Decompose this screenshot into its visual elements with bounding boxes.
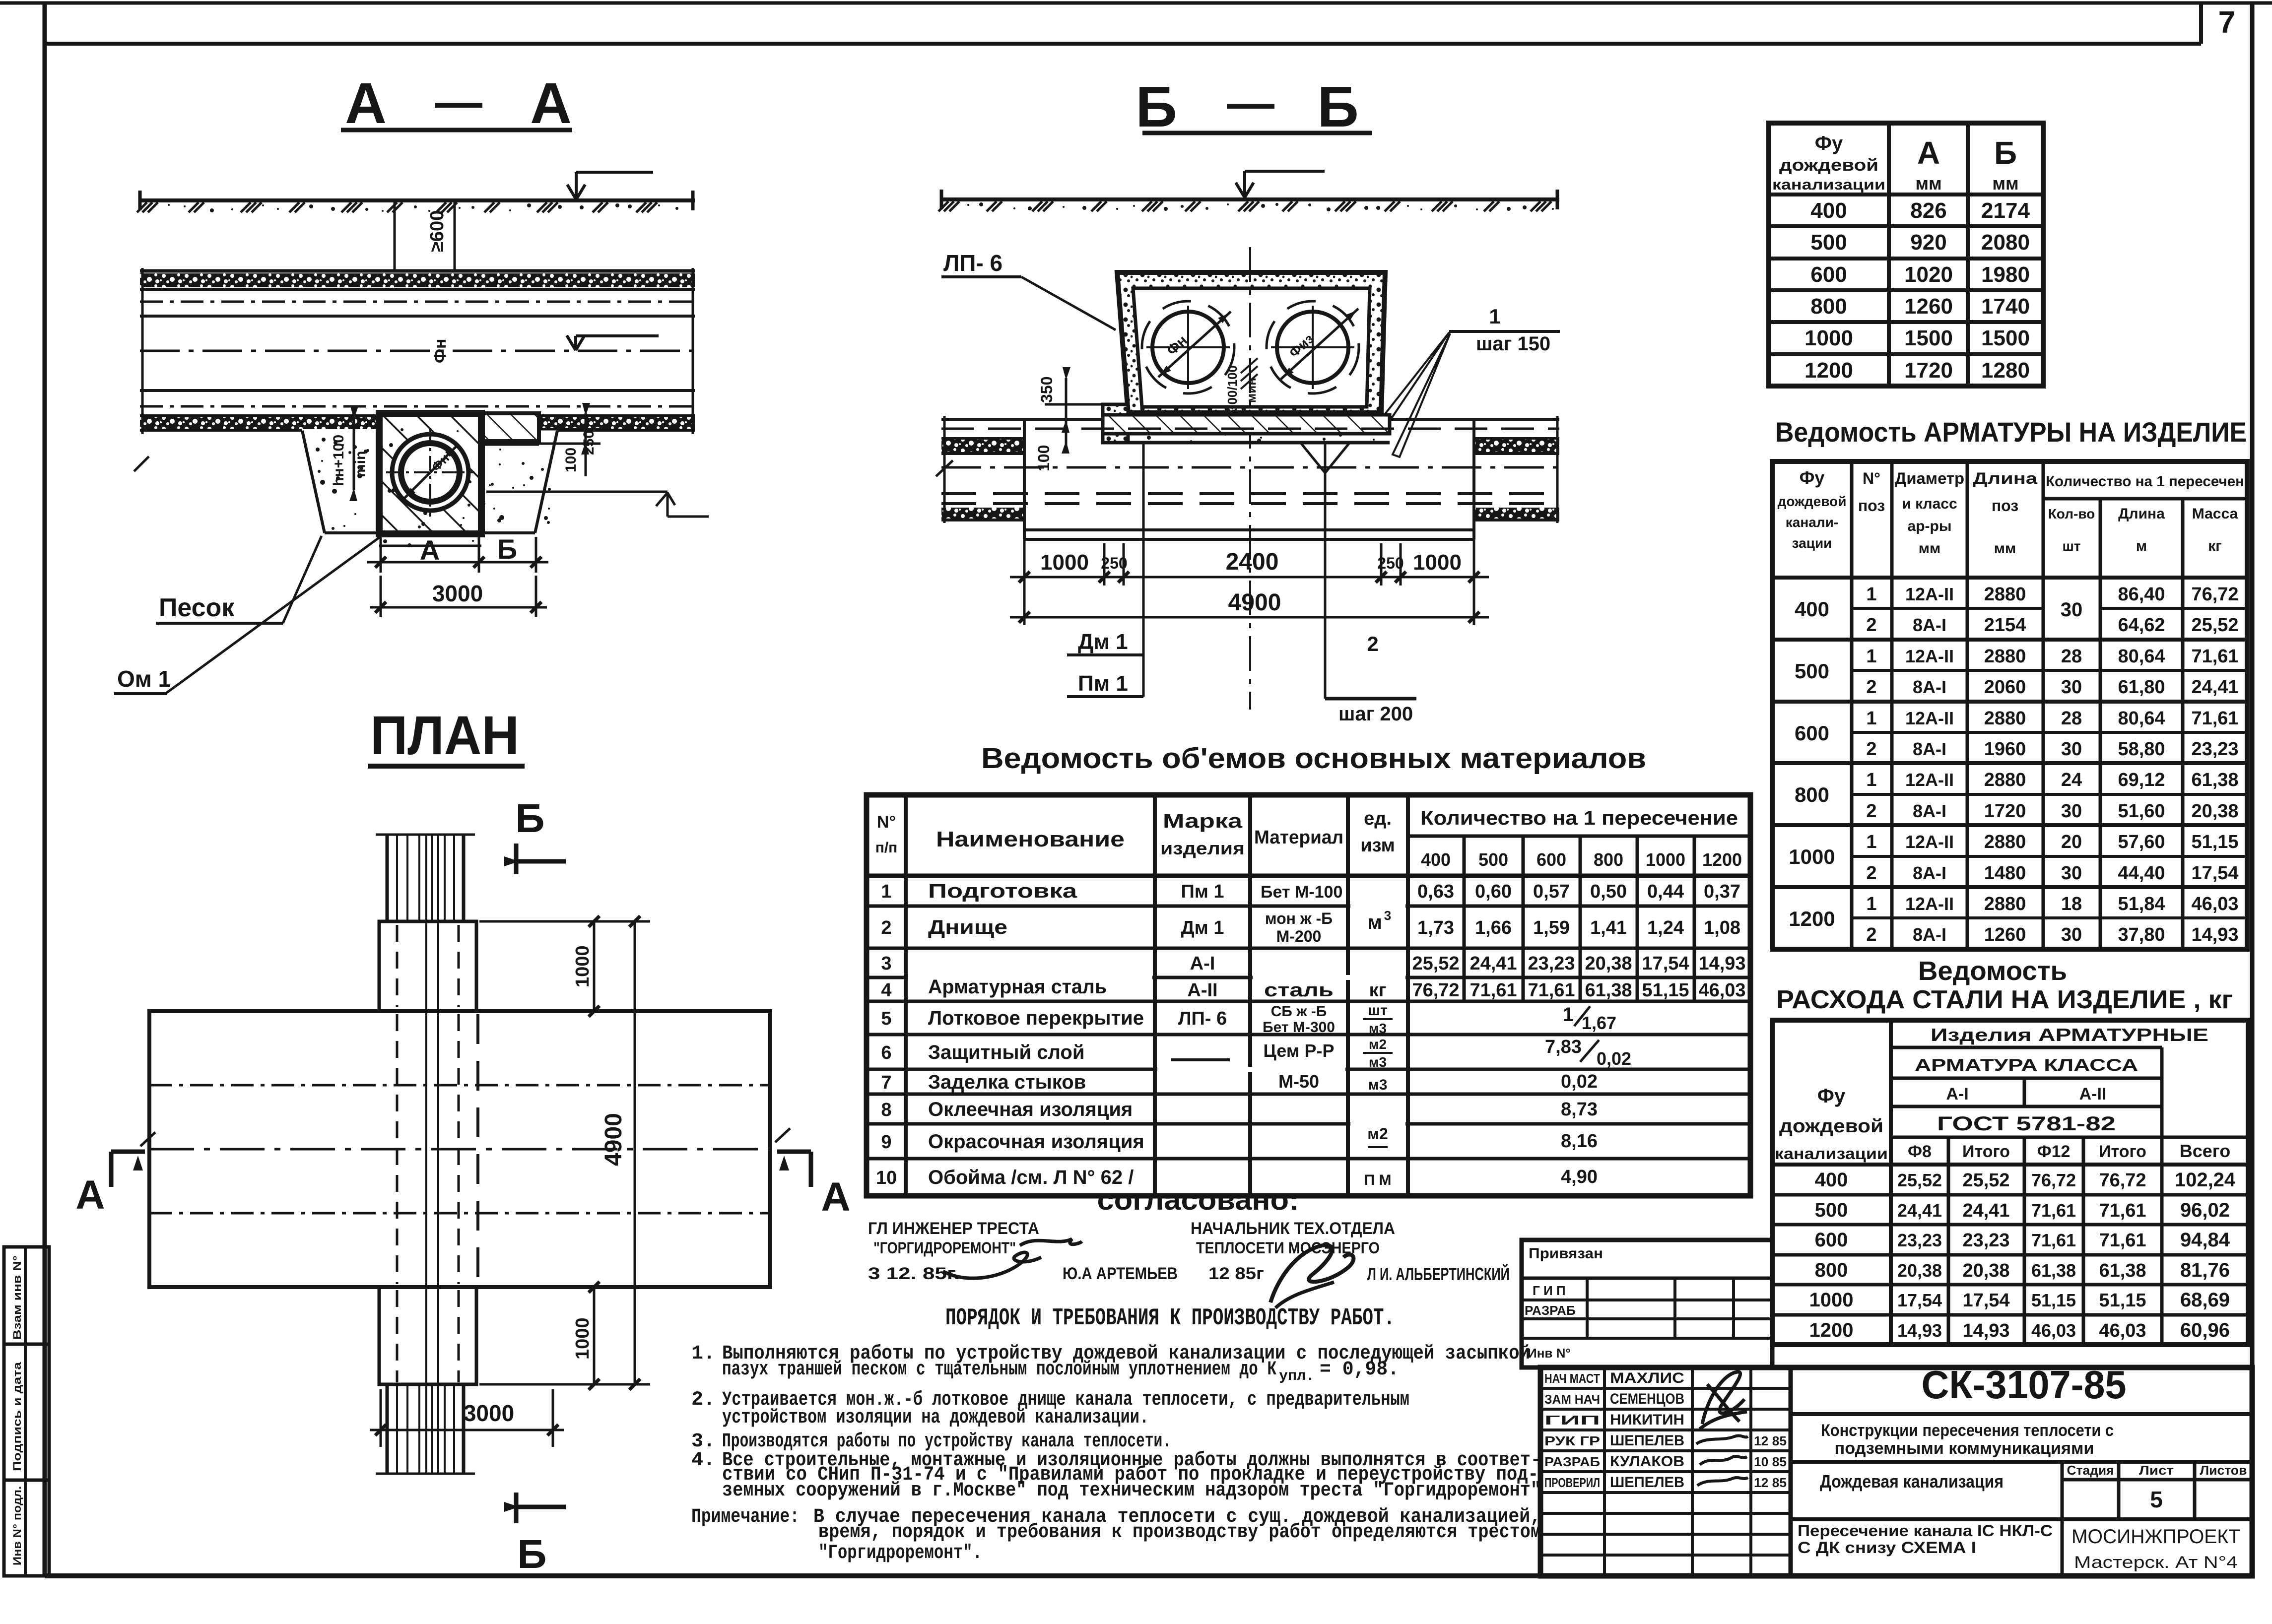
- svg-text:86,40: 86,40: [2118, 584, 2165, 605]
- svg-text:81,76: 81,76: [2180, 1259, 2230, 1281]
- svg-text:2: 2: [1866, 615, 1876, 636]
- svg-text:0,60: 0,60: [1475, 881, 1512, 902]
- svg-text:80,64: 80,64: [2118, 708, 2165, 729]
- svg-text:64,62: 64,62: [2118, 615, 2165, 636]
- svg-text:94,84: 94,84: [2180, 1229, 2230, 1251]
- svg-text:1,08: 1,08: [1704, 917, 1740, 938]
- svg-text:4900: 4900: [601, 1113, 627, 1166]
- svg-text:12А-II: 12А-II: [1905, 770, 1954, 790]
- svg-text:1,59: 1,59: [1533, 917, 1570, 938]
- svg-text:кг: кг: [1369, 980, 1387, 1001]
- svg-text:мм: мм: [1915, 173, 1941, 194]
- svg-text:1500: 1500: [1981, 326, 2030, 350]
- svg-text:1200: 1200: [1809, 1319, 1854, 1341]
- svg-text:А: А: [420, 534, 440, 566]
- svg-text:изм: изм: [1360, 835, 1395, 856]
- svg-text:1: 1: [1866, 584, 1876, 605]
- svg-text:500: 500: [1810, 230, 1847, 255]
- svg-text:25,52: 25,52: [1897, 1170, 1942, 1190]
- svg-text:дождевой: дождевой: [1779, 156, 1878, 175]
- svg-text:61,38: 61,38: [2031, 1260, 2076, 1281]
- svg-text:1000: 1000: [1789, 845, 1835, 868]
- svg-text:28: 28: [2061, 708, 2082, 729]
- svg-text:Фу: Фу: [1817, 1085, 1846, 1107]
- svg-text:Г И П: Г И П: [1533, 1283, 1566, 1298]
- svg-text:"ГОРГИДРОРЕМОНТ": "ГОРГИДРОРЕМОНТ": [873, 1239, 1016, 1257]
- svg-text:61,38: 61,38: [2191, 770, 2238, 790]
- svg-text:А: А: [75, 1172, 105, 1218]
- svg-text:1980: 1980: [1981, 262, 2030, 287]
- svg-text:Наименование: Наименование: [936, 827, 1125, 851]
- svg-text:826: 826: [1910, 198, 1946, 223]
- svg-text:46,03: 46,03: [2099, 1320, 2146, 1341]
- svg-text:12А-II: 12А-II: [1905, 894, 1954, 914]
- svg-text:76,72: 76,72: [1412, 980, 1459, 1001]
- svg-text:2880: 2880: [1984, 770, 2026, 790]
- svg-text:2154: 2154: [1984, 615, 2026, 636]
- svg-text:дождевой: дождевой: [1779, 1116, 1883, 1137]
- svg-text:61,38: 61,38: [2099, 1260, 2146, 1281]
- svg-text:71,61: 71,61: [2099, 1200, 2146, 1221]
- svg-text:1280: 1280: [1981, 358, 2030, 383]
- svg-text:2: 2: [1367, 632, 1378, 655]
- svg-text:30: 30: [2061, 599, 2083, 621]
- svg-text:Мастерск. Ат N°4: Мастерск. Ат N°4: [2074, 1553, 2238, 1572]
- svg-text:Подготовка: Подготовка: [928, 880, 1077, 902]
- svg-text:шаг 200: шаг 200: [1338, 703, 1413, 725]
- svg-text:5: 5: [2150, 1487, 2163, 1512]
- svg-text:4: 4: [881, 980, 891, 1001]
- svg-text:Подпись и дата: Подпись и дата: [11, 1362, 23, 1471]
- svg-text:51,15: 51,15: [2099, 1290, 2146, 1311]
- svg-text:71,61: 71,61: [1528, 980, 1575, 1001]
- svg-text:1000: 1000: [572, 945, 593, 987]
- svg-text:30: 30: [2061, 863, 2082, 884]
- svg-text:1,41: 1,41: [1590, 917, 1627, 938]
- svg-text:350: 350: [1038, 377, 1056, 403]
- svg-text:5: 5: [881, 1008, 891, 1029]
- svg-text:СК-3107-85: СК-3107-85: [1922, 1363, 2127, 1407]
- svg-text:1,73: 1,73: [1417, 917, 1454, 938]
- svg-text:min: min: [352, 451, 369, 477]
- svg-text:мон ж -Б: мон ж -Б: [1265, 909, 1333, 927]
- svg-text:51,60: 51,60: [2118, 801, 2165, 822]
- svg-text:8,16: 8,16: [1561, 1131, 1598, 1152]
- svg-text:2: 2: [881, 917, 891, 938]
- svg-text:8А-I: 8А-I: [1913, 615, 1946, 635]
- svg-text:Л И. АЛЬБЕРТИНСКИЙ: Л И. АЛЬБЕРТИНСКИЙ: [1367, 1263, 1510, 1284]
- svg-text:23,23: 23,23: [1897, 1230, 1942, 1250]
- svg-text:1000: 1000: [1413, 550, 1462, 575]
- svg-text:17,54: 17,54: [2191, 863, 2238, 884]
- svg-text:51,84: 51,84: [2118, 894, 2165, 914]
- svg-text:м2: м2: [1367, 1125, 1388, 1143]
- svg-text:Примечание:: Примечание:: [691, 1506, 800, 1528]
- svg-text:800: 800: [1815, 1259, 1848, 1281]
- svg-text:Ведомость АРМАТУРЫ НА ИЗДЕЛ: Ведомость АРМАТУРЫ НА ИЗДЕЛИЕ: [1775, 416, 2247, 448]
- svg-text:Листов: Листов: [2200, 1463, 2247, 1478]
- svg-text:2174: 2174: [1981, 198, 2030, 223]
- svg-text:устройством изоляции на дождев: устройством изоляции на дождевой канализ…: [722, 1407, 1149, 1429]
- svg-text:1: 1: [1489, 305, 1500, 328]
- svg-text:Дождевая канализация: Дождевая канализация: [1820, 1471, 2004, 1492]
- svg-text:20,38: 20,38: [2191, 801, 2238, 822]
- svg-text:Количество на 1 пересечен: Количество на 1 пересечен: [2046, 473, 2244, 490]
- svg-text:поз: поз: [1858, 497, 1885, 515]
- svg-text:30: 30: [2061, 739, 2082, 760]
- svg-text:А-II: А-II: [1187, 980, 1217, 1001]
- svg-text:920: 920: [1910, 230, 1946, 255]
- svg-text:РАЗРАБ: РАЗРАБ: [1525, 1303, 1576, 1318]
- svg-text:Пересечение канала IС НКЛ-С: Пересечение канала IС НКЛ-С: [1798, 1522, 2053, 1540]
- svg-text:Пм 1: Пм 1: [1181, 881, 1224, 902]
- svg-text:10: 10: [876, 1168, 897, 1188]
- svg-text:Масса: Масса: [2192, 506, 2238, 522]
- svg-text:Фн: Фн: [431, 338, 450, 363]
- svg-text:Ведомость: Ведомость: [1918, 956, 2067, 986]
- svg-text:Стадия: Стадия: [2067, 1463, 2114, 1478]
- svg-text:Диаметр: Диаметр: [1895, 469, 1964, 487]
- svg-text:Песок: Песок: [159, 593, 235, 622]
- svg-text:А-I: А-I: [1946, 1085, 1968, 1104]
- svg-text:400: 400: [1815, 1169, 1848, 1191]
- svg-text:1020: 1020: [1904, 262, 1953, 287]
- svg-text:0,02: 0,02: [1597, 1048, 1631, 1069]
- svg-text:МАХЛИС: МАХЛИС: [1610, 1370, 1684, 1386]
- svg-text:68,69: 68,69: [2180, 1289, 2230, 1311]
- svg-text:согласовано:: согласовано:: [1097, 1184, 1299, 1216]
- svg-text:250: 250: [1377, 554, 1403, 572]
- svg-text:мм: мм: [1992, 173, 2018, 194]
- svg-text:12А-II: 12А-II: [1905, 708, 1954, 728]
- svg-text:23,23: 23,23: [1962, 1230, 2009, 1251]
- svg-text:ЛП- 6: ЛП- 6: [1178, 1008, 1227, 1029]
- svg-text:Фу: Фу: [1800, 467, 1825, 488]
- svg-text:0,57: 0,57: [1533, 881, 1570, 902]
- svg-text:Б: Б: [1317, 74, 1358, 139]
- svg-text:71,61: 71,61: [2191, 708, 2238, 729]
- svg-text:мм: мм: [1919, 540, 1940, 557]
- svg-text:61,80: 61,80: [2118, 677, 2165, 698]
- svg-text:1.: 1.: [691, 1343, 715, 1365]
- svg-text:1200: 1200: [1702, 849, 1742, 870]
- svg-text:время, порядок и требования к: время, порядок и требования к производст…: [818, 1521, 1541, 1544]
- svg-text:А-I: А-I: [1190, 953, 1215, 974]
- svg-text:30: 30: [2061, 677, 2082, 698]
- svg-text:96,02: 96,02: [2180, 1199, 2230, 1221]
- svg-text:1740: 1740: [1981, 294, 2030, 319]
- svg-text:1500: 1500: [1904, 326, 1953, 350]
- svg-text:3: 3: [1384, 908, 1391, 923]
- svg-text:земных сооружений в г.Москве": земных сооружений в г.Москве" под технич…: [722, 1480, 1541, 1502]
- svg-text:1000: 1000: [1646, 849, 1685, 870]
- svg-text:А: А: [345, 71, 387, 135]
- svg-text:37,80: 37,80: [2118, 924, 2165, 945]
- svg-text:400: 400: [1795, 597, 1829, 621]
- svg-text:1: 1: [1866, 708, 1876, 729]
- svg-text:м3: м3: [1369, 1021, 1387, 1036]
- svg-text:400: 400: [1810, 198, 1847, 223]
- svg-text:12А-II: 12А-II: [1905, 646, 1954, 666]
- svg-text:ГИП: ГИП: [1544, 1413, 1600, 1428]
- svg-text:80,64: 80,64: [2118, 646, 2165, 667]
- svg-text:м: м: [2136, 538, 2147, 554]
- svg-text:Кол-во: Кол-во: [2048, 506, 2095, 521]
- svg-text:1260: 1260: [1904, 294, 1953, 319]
- svg-text:1,24: 1,24: [1647, 917, 1684, 938]
- svg-text:Окрасочная изоляция: Окрасочная изоляция: [928, 1131, 1144, 1153]
- svg-text:1: 1: [1866, 832, 1876, 852]
- svg-text:П М: П М: [1364, 1172, 1392, 1188]
- svg-text:Взам инв N°: Взам инв N°: [11, 1255, 23, 1340]
- svg-text:400: 400: [1421, 849, 1451, 870]
- svg-text:20,38: 20,38: [1897, 1260, 1942, 1281]
- svg-text:25,52: 25,52: [1962, 1170, 2009, 1191]
- svg-text:1200: 1200: [1804, 358, 1853, 383]
- svg-text:2880: 2880: [1984, 584, 2026, 605]
- svg-text:76,72: 76,72: [2031, 1170, 2076, 1190]
- svg-text:шаг 150: шаг 150: [1476, 333, 1550, 355]
- svg-text:ГОСТ 5781-82: ГОСТ 5781-82: [1937, 1113, 2116, 1135]
- svg-text:ед.: ед.: [1364, 808, 1392, 829]
- svg-text:2880: 2880: [1984, 894, 2026, 914]
- svg-text:ГЛ ИНЖЕНЕР ТРЕСТА: ГЛ ИНЖЕНЕР ТРЕСТА: [868, 1219, 1039, 1238]
- svg-text:8: 8: [881, 1100, 891, 1120]
- svg-text:1,67: 1,67: [1582, 1013, 1616, 1033]
- svg-text:51,15: 51,15: [2191, 832, 2238, 852]
- svg-text:61,38: 61,38: [1585, 980, 1632, 1001]
- svg-text:—: —: [435, 75, 482, 129]
- svg-text:3000: 3000: [464, 1400, 514, 1426]
- svg-text:канализации: канализации: [1772, 177, 1885, 193]
- svg-text:800: 800: [1594, 849, 1623, 870]
- svg-text:69,12: 69,12: [2118, 770, 2165, 790]
- svg-text:М-200: М-200: [1276, 927, 1322, 945]
- svg-text:Фу: Фу: [1815, 132, 1843, 154]
- svg-text:2400: 2400: [1226, 549, 1279, 575]
- svg-text:Ом 1: Ом 1: [117, 666, 171, 692]
- svg-text:1: 1: [1866, 646, 1876, 667]
- svg-text:2880: 2880: [1984, 832, 2026, 852]
- svg-text:1000: 1000: [1804, 326, 1853, 350]
- svg-text:76,72: 76,72: [2191, 584, 2238, 605]
- svg-text:дождевой: дождевой: [1778, 494, 1847, 509]
- svg-text:12 85: 12 85: [1754, 1475, 1787, 1490]
- svg-text:А: А: [1917, 135, 1940, 171]
- svg-text:Б: Б: [497, 533, 517, 565]
- svg-text:14,93: 14,93: [1962, 1320, 2009, 1341]
- svg-text:С ДК снизу СХЕМА I: С ДК снизу СХЕМА I: [1798, 1539, 1976, 1557]
- svg-text:1: 1: [1866, 894, 1876, 914]
- svg-text:РАЗРАБ: РАЗРАБ: [1544, 1454, 1600, 1469]
- svg-text:ЗАМ НАЧ: ЗАМ НАЧ: [1544, 1392, 1600, 1407]
- svg-text:2: 2: [1866, 863, 1876, 884]
- svg-text:8А-I: 8А-I: [1913, 677, 1946, 697]
- svg-text:Бет М-300: Бет М-300: [1263, 1019, 1335, 1036]
- svg-text:Ф8: Ф8: [1908, 1142, 1932, 1161]
- svg-text:20: 20: [2061, 832, 2082, 852]
- svg-text:Б: Б: [1136, 74, 1177, 139]
- svg-text:0,50: 0,50: [1590, 881, 1627, 902]
- svg-text:ПЛАН: ПЛАН: [370, 705, 519, 766]
- svg-text:20,38: 20,38: [1585, 953, 1632, 974]
- svg-text:ПРОВЕРИЛ: ПРОВЕРИЛ: [1544, 1475, 1600, 1490]
- svg-text:25,52: 25,52: [2191, 615, 2238, 636]
- svg-text:Лист: Лист: [2139, 1463, 2174, 1478]
- svg-text:мм: мм: [1994, 540, 2016, 557]
- svg-text:7: 7: [2218, 5, 2235, 40]
- svg-text:0,44: 0,44: [1647, 881, 1684, 902]
- svg-text:Длина: Длина: [2118, 506, 2165, 522]
- svg-text:24,41: 24,41: [1962, 1200, 2009, 1221]
- svg-text:Бет М-100: Бет М-100: [1261, 883, 1342, 902]
- svg-text:100: 100: [563, 448, 579, 472]
- svg-text:12 85: 12 85: [1754, 1433, 1787, 1448]
- svg-text:Цем Р-Р: Цем Р-Р: [1264, 1040, 1335, 1061]
- svg-text:30: 30: [2061, 924, 2082, 945]
- svg-text:500: 500: [1478, 849, 1508, 870]
- svg-text:изделия: изделия: [1160, 838, 1245, 858]
- svg-text:Б: Б: [1994, 135, 2017, 171]
- svg-text:поз: поз: [1992, 497, 2018, 515]
- svg-text:3: 3: [881, 953, 891, 974]
- svg-text:46,03: 46,03: [2191, 894, 2238, 914]
- svg-text:0,02: 0,02: [1561, 1071, 1598, 1092]
- svg-text:23,23: 23,23: [1528, 953, 1575, 974]
- svg-text:9: 9: [881, 1132, 891, 1153]
- svg-text:1200: 1200: [1789, 907, 1835, 930]
- svg-text:8А-I: 8А-I: [1913, 863, 1946, 883]
- svg-text:8А-I: 8А-I: [1913, 924, 1946, 945]
- svg-text:500: 500: [1795, 659, 1829, 683]
- svg-text:2080: 2080: [1981, 230, 2030, 255]
- svg-text:12А-II: 12А-II: [1905, 584, 1954, 604]
- svg-text:2: 2: [1866, 739, 1876, 760]
- svg-text:СБ ж -Б: СБ ж -Б: [1271, 1003, 1327, 1020]
- svg-text:1960: 1960: [1984, 739, 2026, 760]
- svg-text:51,15: 51,15: [2031, 1290, 2076, 1310]
- svg-text:58,80: 58,80: [2118, 739, 2165, 760]
- svg-text:250: 250: [581, 430, 597, 455]
- svg-text:"Горгидроремонт".: "Горгидроремонт".: [818, 1542, 982, 1564]
- svg-text:шт: шт: [2062, 538, 2080, 554]
- svg-text:51,15: 51,15: [1642, 980, 1689, 1001]
- svg-text:46,03: 46,03: [1698, 980, 1745, 1001]
- svg-text:Марка: Марка: [1163, 810, 1243, 832]
- svg-text:РАСХОДА СТАЛИ НА ИЗДЕЛИЕ ,: РАСХОДА СТАЛИ НА ИЗДЕЛИЕ , кг: [1776, 985, 2233, 1014]
- svg-text:24,41: 24,41: [1470, 953, 1517, 974]
- svg-text:1000: 1000: [1809, 1289, 1854, 1311]
- svg-text:25,52: 25,52: [1412, 953, 1459, 974]
- svg-text:4,90: 4,90: [1561, 1167, 1598, 1187]
- svg-text:17,54: 17,54: [1642, 953, 1689, 974]
- svg-text:Ведомость об'емов основных: Ведомость об'емов основных материалов: [981, 742, 1646, 775]
- svg-text:≥600: ≥600: [427, 210, 448, 252]
- svg-text:800: 800: [1810, 294, 1847, 319]
- svg-text:2: 2: [1866, 924, 1876, 945]
- svg-text:1: 1: [881, 881, 891, 902]
- svg-text:800: 800: [1795, 783, 1829, 806]
- svg-text:ШЕПЕЛЕВ: ШЕПЕЛЕВ: [1610, 1432, 1684, 1449]
- svg-text:Дм 1: Дм 1: [1181, 917, 1224, 938]
- svg-text:8А-I: 8А-I: [1913, 739, 1946, 759]
- svg-text:2880: 2880: [1984, 708, 2026, 729]
- svg-text:N°: N°: [877, 813, 896, 832]
- svg-text:Итого: Итого: [2099, 1142, 2146, 1161]
- svg-text:8,73: 8,73: [1561, 1099, 1598, 1120]
- svg-text:Привязан: Привязан: [1529, 1245, 1603, 1262]
- svg-text:сталь: сталь: [1264, 980, 1334, 1001]
- svg-text:А-II: А-II: [2079, 1085, 2107, 1104]
- svg-text:17,54: 17,54: [1962, 1290, 2009, 1311]
- svg-text:Дм 1: Дм 1: [1078, 630, 1128, 654]
- svg-text:МОСИНЖПРОЕКТ: МОСИНЖПРОЕКТ: [2072, 1526, 2240, 1548]
- svg-text:71,61: 71,61: [2031, 1230, 2076, 1250]
- svg-text:А: А: [821, 1174, 850, 1220]
- svg-text:71,61: 71,61: [2191, 646, 2238, 667]
- svg-text:2: 2: [1866, 801, 1876, 822]
- svg-text:Заделка стыков: Заделка стыков: [928, 1071, 1086, 1093]
- svg-text:Всего: Всего: [2180, 1141, 2231, 1161]
- svg-text:Ю.А АРТЕМЬЕВ: Ю.А АРТЕМЬЕВ: [1063, 1264, 1178, 1283]
- svg-text:4900: 4900: [1228, 589, 1281, 616]
- svg-text:м3: м3: [1369, 1054, 1387, 1070]
- svg-text:7,83: 7,83: [1545, 1037, 1582, 1057]
- svg-text:Количество на 1 пересечение: Количество на 1 пересечение: [1420, 807, 1738, 829]
- svg-text:0,37: 0,37: [1704, 881, 1740, 902]
- svg-text:канали-: канали-: [1786, 515, 1838, 530]
- svg-text:12 85г: 12 85г: [1208, 1264, 1264, 1283]
- svg-text:НАЧ МАСТ: НАЧ МАСТ: [1544, 1371, 1600, 1386]
- svg-text:10 85: 10 85: [1754, 1454, 1787, 1469]
- svg-text:600: 600: [1815, 1229, 1848, 1251]
- svg-text:28: 28: [2061, 646, 2082, 667]
- svg-text:НАЧАЛЬНИК ТЕХ.ОТДЕЛА: НАЧАЛЬНИК ТЕХ.ОТДЕЛА: [1191, 1219, 1395, 1238]
- svg-text:1: 1: [1563, 1004, 1574, 1026]
- svg-text:600: 600: [1810, 262, 1847, 287]
- svg-text:2.: 2.: [691, 1389, 715, 1411]
- svg-text:М-50: М-50: [1278, 1071, 1319, 1092]
- svg-text:Длина: Длина: [1973, 469, 2037, 487]
- svg-text:Б: Б: [518, 1532, 547, 1577]
- svg-text:Пм 1: Пм 1: [1078, 671, 1128, 696]
- svg-text:Оклеечная изоляция: Оклеечная изоляция: [928, 1099, 1133, 1120]
- svg-text:4.: 4.: [691, 1449, 715, 1472]
- svg-text:30: 30: [2061, 801, 2082, 822]
- svg-text:60,96: 60,96: [2180, 1319, 2230, 1341]
- svg-text:кг: кг: [2208, 538, 2222, 554]
- svg-text:7: 7: [881, 1072, 891, 1093]
- svg-text:24: 24: [2061, 770, 2082, 790]
- svg-text:6: 6: [881, 1042, 891, 1063]
- svg-text:подземными коммуникациям: подземными коммуникациями: [1835, 1439, 2094, 1458]
- svg-text:102,24: 102,24: [2175, 1169, 2236, 1191]
- svg-text:14,93: 14,93: [2191, 924, 2238, 945]
- svg-text:300/100: 300/100: [1225, 365, 1240, 412]
- svg-text:2880: 2880: [1984, 646, 2026, 667]
- svg-text:71,61: 71,61: [2099, 1230, 2146, 1251]
- svg-text:пазух траншей песком с тщатель: пазух траншей песком с тщательным послой…: [722, 1359, 1276, 1381]
- svg-text:ШЕПЕЛЕВ: ШЕПЕЛЕВ: [1610, 1474, 1684, 1491]
- svg-text:76,72: 76,72: [2099, 1170, 2146, 1191]
- svg-text:м2: м2: [1369, 1037, 1387, 1052]
- svg-text:12А-II: 12А-II: [1905, 832, 1954, 852]
- svg-text:17,54: 17,54: [1897, 1290, 1942, 1310]
- svg-text:3000: 3000: [432, 581, 483, 606]
- svg-text:ПОРЯДОК И ТРЕБОВАНИЯ К ПРОИЗВО: ПОРЯДОК И ТРЕБОВАНИЯ К ПРОИЗВОДСТВУ РАБО…: [945, 1305, 1395, 1332]
- svg-text:1,66: 1,66: [1475, 917, 1512, 938]
- svg-text:Арматурная сталь: Арматурная сталь: [928, 976, 1107, 998]
